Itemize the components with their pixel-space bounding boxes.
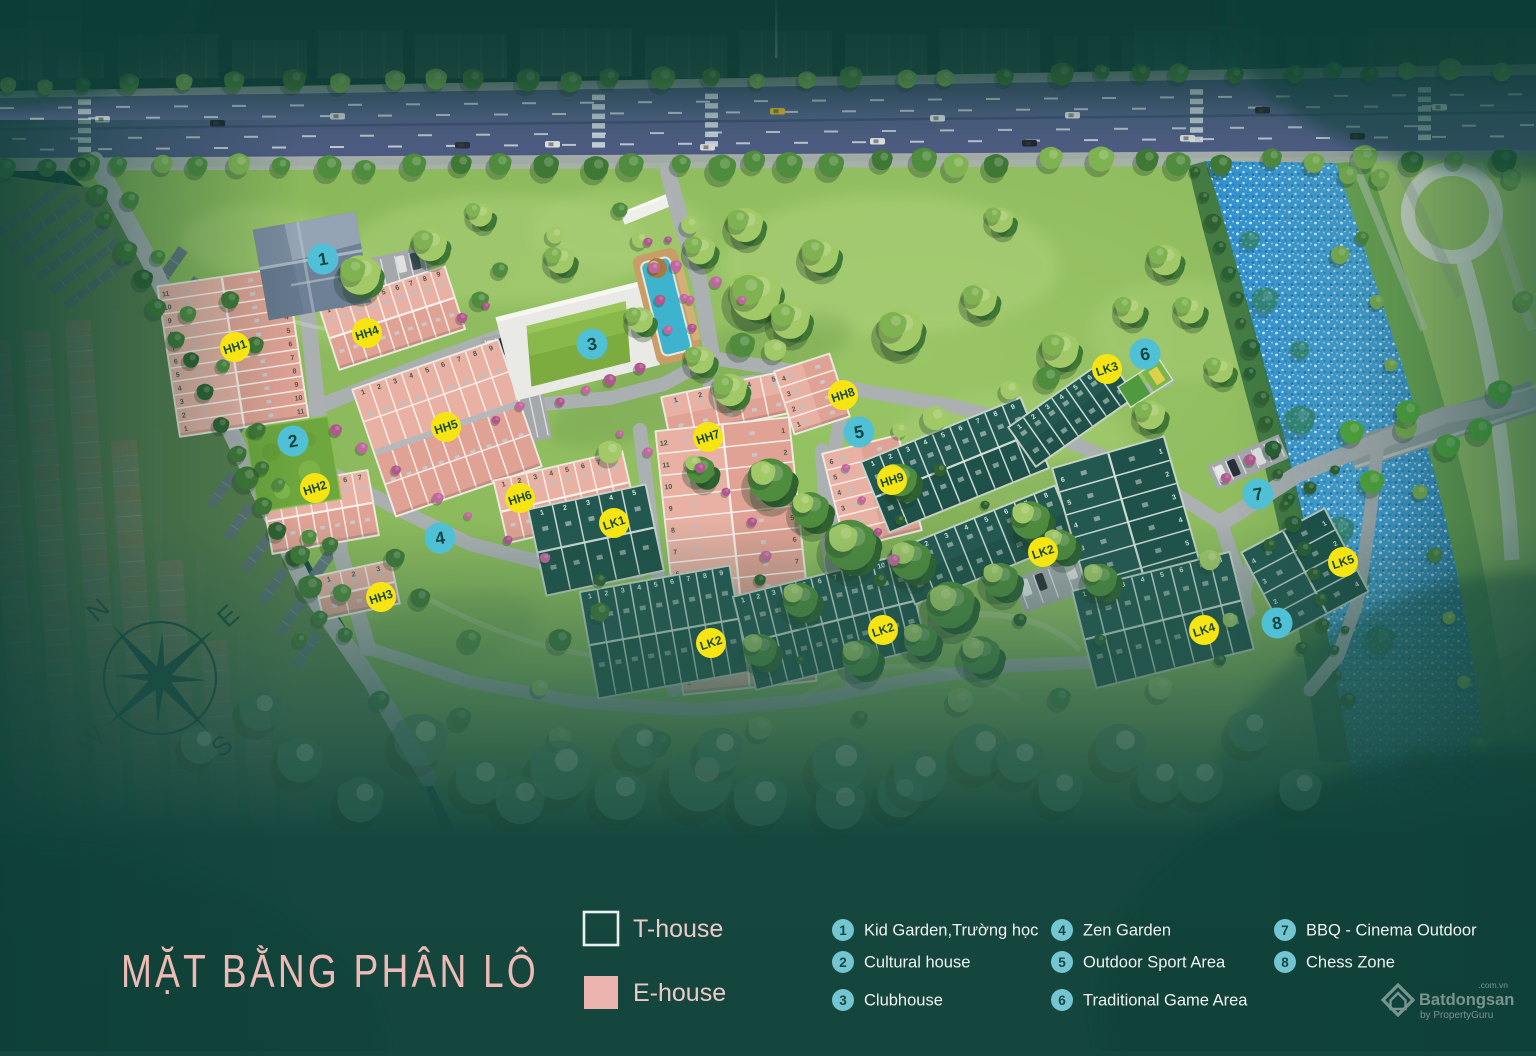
- svg-text:5: 5: [1058, 955, 1066, 970]
- svg-text:Clubhouse: Clubhouse: [864, 992, 943, 1010]
- svg-text:3: 3: [839, 993, 847, 1008]
- svg-text:Zen Garden: Zen Garden: [1083, 922, 1171, 940]
- svg-text:MẶT BẰNG PHÂN LÔ: MẶT BẰNG PHÂN LÔ: [121, 945, 539, 997]
- svg-text:.com.vn: .com.vn: [1478, 980, 1508, 990]
- svg-text:2: 2: [839, 955, 847, 970]
- svg-text:by PropertyGuru: by PropertyGuru: [1420, 1010, 1493, 1021]
- svg-text:Chess Zone: Chess Zone: [1306, 954, 1395, 972]
- svg-text:11: 11: [662, 462, 670, 470]
- svg-text:E-house: E-house: [633, 979, 726, 1007]
- svg-text:BBQ - Cinema Outdoor: BBQ - Cinema Outdoor: [1306, 922, 1477, 940]
- svg-text:12: 12: [660, 440, 669, 448]
- svg-text:T-house: T-house: [633, 915, 723, 943]
- svg-text:Kid Garden,Trường học: Kid Garden,Trường học: [864, 922, 1038, 940]
- svg-text:Outdoor Sport Area: Outdoor Sport Area: [1083, 954, 1226, 972]
- svg-text:Batdongsan: Batdongsan: [1419, 991, 1514, 1009]
- svg-text:4: 4: [1058, 923, 1066, 938]
- svg-text:Traditional Game Area: Traditional Game Area: [1083, 992, 1248, 1010]
- svg-text:6: 6: [1058, 993, 1066, 1008]
- svg-text:Cultural house: Cultural house: [864, 954, 970, 972]
- svg-text:1: 1: [839, 923, 847, 938]
- svg-text:7: 7: [1281, 923, 1289, 938]
- svg-text:10: 10: [664, 484, 673, 492]
- svg-text:8: 8: [1281, 955, 1289, 970]
